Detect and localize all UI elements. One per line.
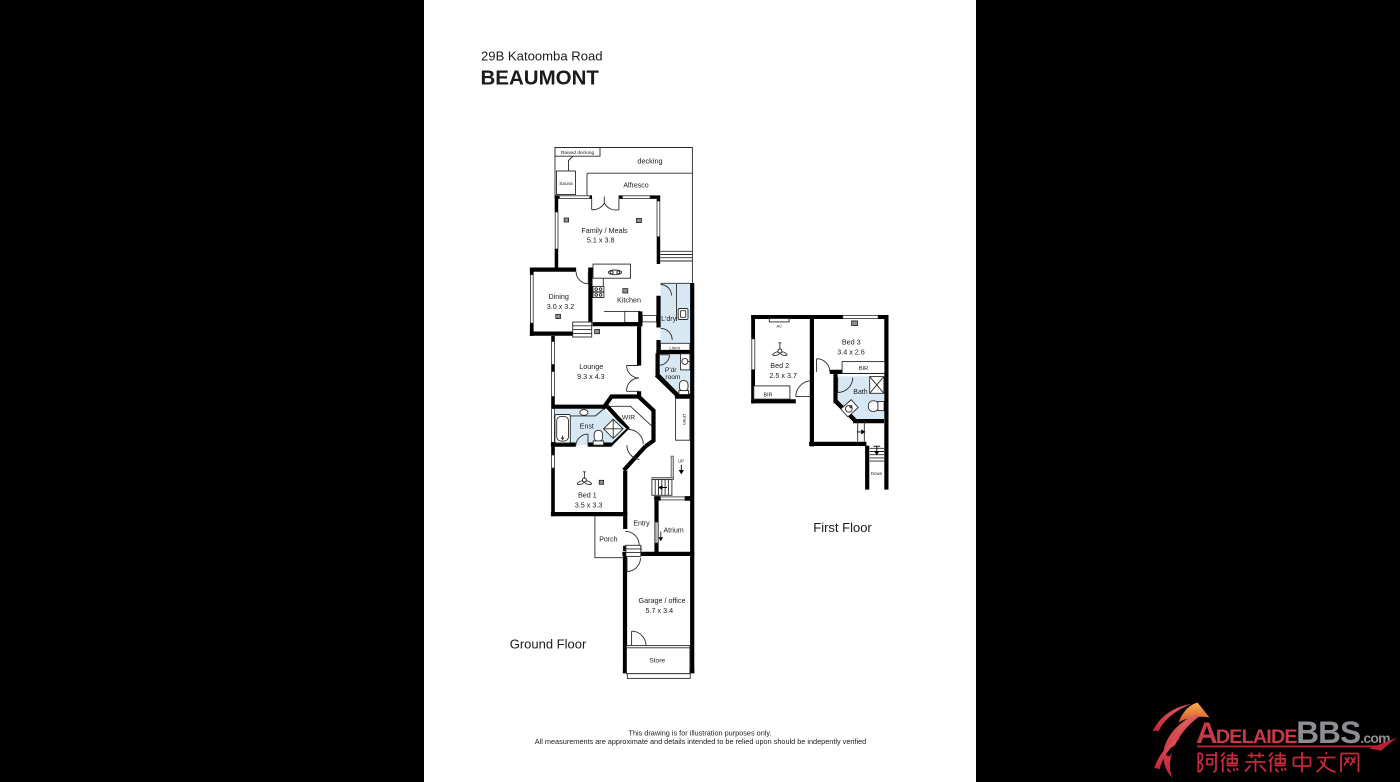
svg-text:Garage / office: Garage / office: [638, 596, 685, 605]
svg-text:3.5 x 3.3: 3.5 x 3.3: [575, 500, 603, 509]
svg-text:Ground Floor: Ground Floor: [510, 637, 587, 652]
svg-text:3.0 x 3.2: 3.0 x 3.2: [547, 302, 575, 311]
svg-text:BIR: BIR: [764, 392, 773, 398]
svg-text:WIR: WIR: [622, 415, 635, 422]
svg-text:First Floor: First Floor: [813, 520, 872, 535]
svg-text:Bed 2: Bed 2: [770, 361, 789, 370]
svg-text:L'dry: L'dry: [661, 316, 676, 323]
svg-text:decking: decking: [637, 157, 662, 166]
svg-text:BIR: BIR: [859, 366, 868, 372]
svg-text:Down: Down: [871, 471, 883, 476]
svg-text:UP: UP: [678, 458, 684, 463]
svg-text:Bed 1: Bed 1: [578, 490, 597, 499]
svg-text:5.1 x 3.8: 5.1 x 3.8: [587, 236, 615, 245]
svg-text:29B Katoomba Road: 29B Katoomba Road: [481, 49, 603, 64]
svg-text:Store: Store: [649, 657, 665, 664]
svg-text:9.3 x 4.3: 9.3 x 4.3: [577, 372, 605, 381]
svg-text:Alfresco: Alfresco: [623, 183, 648, 190]
svg-text:Family / Meals: Family / Meals: [581, 226, 628, 235]
svg-text:Lounge: Lounge: [579, 362, 603, 371]
svg-text:Kitchen: Kitchen: [617, 296, 641, 305]
svg-text:Atrium: Atrium: [663, 527, 683, 534]
svg-text:P'dr: P'dr: [665, 367, 677, 374]
svg-text:Entry: Entry: [633, 521, 650, 528]
svg-text:room: room: [665, 374, 681, 381]
svg-text:Linen: Linen: [682, 414, 687, 426]
svg-text:Bed 3: Bed 3: [842, 338, 861, 347]
svg-text:2.5 x 3.7: 2.5 x 3.7: [769, 371, 797, 380]
svg-text:All measurements are approxima: All measurements are approximate and det…: [535, 737, 866, 746]
svg-text:Linen: Linen: [669, 345, 680, 350]
svg-text:AC: AC: [776, 324, 782, 329]
svg-text:5.7 x 3.4: 5.7 x 3.4: [646, 606, 674, 615]
svg-text:Porch: Porch: [599, 536, 617, 543]
svg-text:Enst: Enst: [580, 424, 594, 431]
svg-text:Sauna: Sauna: [559, 181, 573, 186]
svg-text:Dining: Dining: [549, 292, 569, 301]
svg-text:Raised decking: Raised decking: [561, 150, 595, 156]
svg-text:3.4 x 2.6: 3.4 x 2.6: [837, 347, 865, 356]
svg-text:Bath: Bath: [853, 389, 868, 396]
svg-text:BEAUMONT: BEAUMONT: [481, 67, 600, 90]
